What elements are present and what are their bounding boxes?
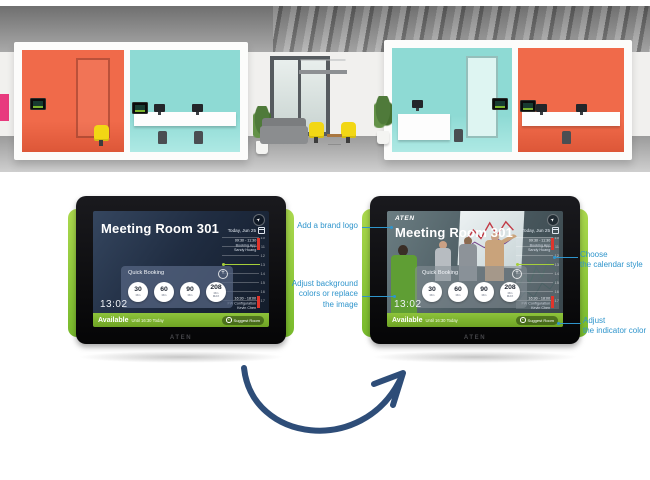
teal-room [392,48,512,152]
screen-brand-logo: ATEN [395,215,415,222]
hour-tick: 15 [555,280,559,285]
event-indicator-bar [257,238,260,250]
quick-booking-title: Quick Booking [128,270,164,276]
hour-tick: 13 [555,262,559,267]
leader-line [362,296,394,297]
quick-booking-panel: Quick Booking + 30Min 60Min 90Min 208Min… [415,266,527,308]
clock: 13:02 [100,299,128,310]
quick-book-30[interactable]: 30Min [128,282,148,302]
quick-book-90[interactable]: 90Min [474,282,494,302]
leader-line [560,323,581,324]
meeting-pod-left [14,42,248,160]
room-title: Meeting Room 301 [101,221,219,236]
desk [398,114,450,140]
hour-tick: 13 [261,262,265,267]
device-body: Meeting Room 301 ➤ Today, Jun 25 10 11 1… [76,196,286,344]
meeting-pod-right [384,40,632,160]
leader-dot [557,322,560,325]
share-icon: ➤ [550,217,556,223]
availability-bar: Available Until 16:30 Today + Suggest Ro… [93,313,269,327]
current-time-indicator [516,264,554,265]
aten-bezel-logo: ATEN [76,335,286,341]
calendar-event[interactable]: 09:30 - 11:30 Booking App Sandy Huang [222,237,265,251]
pink-accent-panel [0,94,9,121]
event-indicator-bar [551,238,554,250]
office-photo [0,6,650,172]
annotation-adjust-indicator: Adjust the indicator color [583,316,649,337]
leader-line [556,257,578,258]
add-booking-button[interactable]: + [512,269,522,279]
event-owner: Kevin Chen [531,306,550,309]
monitor [412,100,423,108]
clock: 13:02 [394,299,422,310]
leader-dot [553,256,556,259]
event-owner: Sandy Huang [234,248,256,253]
annotation-choose-calendar: Choose the calendar style [580,250,648,271]
booking-panel-customized: ATEN Meeting Room 301 ➤ Today, Jun 25 10… [360,196,590,354]
availability-bar: Available Until 16:30 Today + Suggest Ro… [387,313,563,327]
device-body: ATEN Meeting Room 301 ➤ Today, Jun 25 10… [370,196,580,344]
wall-booking-panel [132,102,148,114]
calendar-icon [552,227,559,234]
monitor [576,104,587,112]
potted-plant [372,96,394,144]
leader-line [362,227,390,228]
quick-book-60[interactable]: 60Min [448,282,468,302]
annotation-adjust-background: Adjust background colors or replace the … [240,279,358,310]
suggest-room-icon: + [226,317,232,323]
add-booking-button[interactable]: + [218,269,228,279]
yellow-chair [93,125,110,146]
current-time-indicator [222,264,260,265]
wall-booking-panel [492,98,508,110]
orange-room [22,50,124,152]
status-detail: Until 16:30 Today [131,318,163,323]
transform-arrow [234,360,420,460]
office-chair [194,131,203,144]
annotation-add-brand-logo: Add a brand logo [240,221,358,231]
hour-tick: 14 [555,271,559,276]
status-label: Available [392,317,422,324]
booking-panel-default: Meeting Room 301 ➤ Today, Jun 25 10 11 1… [66,196,296,354]
suggest-room-button[interactable]: + Suggest Room [516,316,558,325]
pendant-light [299,70,347,74]
date-selector[interactable]: Today, Jun 25 [522,227,559,234]
leader-dot [390,226,393,229]
aten-bezel-logo: ATEN [370,335,580,341]
hour-tick: 16 [555,289,559,294]
quick-book-60[interactable]: 60Min [154,282,174,302]
desk [134,112,236,126]
date-label: Today, Jun 25 [522,228,550,233]
event-indicator-bar [551,296,554,308]
yellow-lounge-chair [340,122,357,143]
teal-room [130,50,240,152]
orange-room [518,48,624,152]
quick-book-30[interactable]: 30Min [422,282,442,302]
quick-booking-title: Quick Booking [422,270,458,276]
status-detail: Until 16:30 Today [425,318,457,323]
event-owner: Sandy Huang [528,248,550,253]
hour-tick: 14 [261,271,265,276]
lounge-sofa [260,118,308,150]
room-title: Meeting Room 301 [395,225,513,240]
quick-booking-panel: Quick Booking + 30Min 60Min 90Min 208Min… [121,266,233,308]
quick-book-90[interactable]: 90Min [180,282,200,302]
suggest-room-button[interactable]: + Suggest Room [222,316,264,325]
lounge-table [327,134,342,137]
office-chair [454,129,463,142]
yellow-lounge-chair [308,122,325,143]
monitor [192,104,203,112]
office-chair [158,131,167,144]
wall-booking-panel [520,100,536,112]
room-door [466,56,498,138]
share-button[interactable]: ➤ [547,214,559,226]
office-chair [562,131,571,144]
quick-book-max[interactable]: 208Min MAX [500,282,520,302]
status-label: Available [98,317,128,324]
monitor [154,104,165,112]
calendar-event[interactable]: 09:30 - 11:30 Booking App Sandy Huang [516,237,559,251]
wall-booking-panel [30,98,46,110]
monitor [536,104,547,112]
desk [522,112,620,126]
leader-dot [393,295,396,298]
quick-book-max[interactable]: 208Min MAX [206,282,226,302]
hour-tick: 12 [261,253,265,258]
booking-screen: ATEN Meeting Room 301 ➤ Today, Jun 25 10… [387,211,563,327]
suggest-room-icon: + [520,317,526,323]
